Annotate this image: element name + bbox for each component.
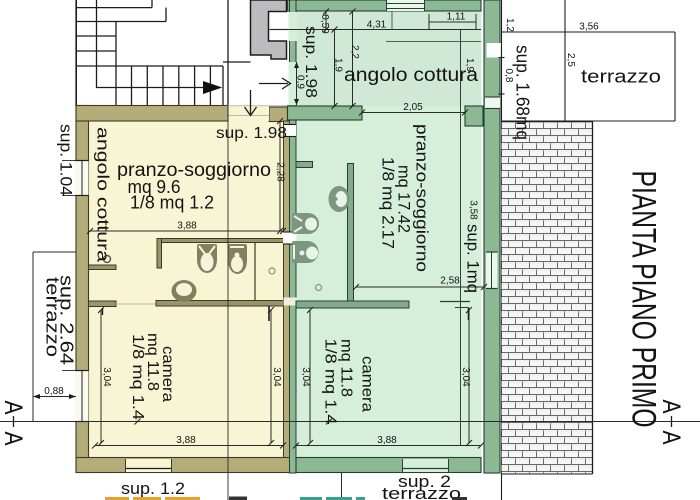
svg-text:A: A bbox=[657, 431, 685, 445]
svg-text:PIANTA PIANO PRIMO: PIANTA PIANO PRIMO bbox=[625, 171, 663, 428]
svg-text:pranzo-soggiorno: pranzo-soggiorno bbox=[413, 124, 431, 272]
svg-text:2,28: 2,28 bbox=[275, 162, 286, 182]
svg-text:angolo cottura: angolo cottura bbox=[344, 65, 478, 86]
svg-text:1/8 mq 1.2: 1/8 mq 1.2 bbox=[130, 193, 214, 213]
svg-text:3,88: 3,88 bbox=[377, 435, 397, 446]
svg-text:terrazzo: terrazzo bbox=[43, 277, 63, 357]
svg-text:A: A bbox=[657, 400, 685, 414]
svg-text:3,04: 3,04 bbox=[300, 367, 311, 387]
svg-text:2,5: 2,5 bbox=[565, 53, 576, 67]
svg-text:0,8: 0,8 bbox=[503, 69, 514, 83]
svg-text:terrazzo: terrazzo bbox=[382, 484, 461, 500]
svg-text:2,58: 2,58 bbox=[440, 276, 460, 287]
svg-text:2,05: 2,05 bbox=[403, 102, 423, 113]
svg-text:angolo cottura: angolo cottura bbox=[94, 127, 113, 263]
svg-text:1/8 mq 2.17: 1/8 mq 2.17 bbox=[379, 157, 397, 249]
svg-text:1,9: 1,9 bbox=[333, 58, 344, 72]
svg-text:3,04: 3,04 bbox=[101, 367, 112, 387]
svg-text:A: A bbox=[0, 432, 27, 446]
svg-text:mq 11.8: mq 11.8 bbox=[338, 339, 355, 397]
svg-text:1/8 mq 1.4: 1/8 mq 1.4 bbox=[322, 339, 339, 425]
svg-text:A: A bbox=[0, 401, 27, 415]
svg-text:3,88: 3,88 bbox=[177, 221, 197, 232]
svg-text:sup. 1.98: sup. 1.98 bbox=[302, 26, 319, 98]
svg-text:1,2: 1,2 bbox=[504, 18, 515, 32]
svg-text:3,88: 3,88 bbox=[176, 435, 196, 446]
svg-text:sup. 1.68mq: sup. 1.68mq bbox=[513, 45, 533, 140]
svg-text:1/8 mq 1.4: 1/8 mq 1.4 bbox=[129, 334, 146, 420]
svg-text:sup. 1.04: sup. 1.04 bbox=[57, 124, 76, 196]
svg-text:3,04: 3,04 bbox=[460, 367, 471, 387]
svg-text:terrazzo: terrazzo bbox=[581, 67, 661, 87]
svg-text:3,56: 3,56 bbox=[579, 22, 599, 33]
svg-text:sup. 1mq: sup. 1mq bbox=[464, 224, 483, 293]
svg-text:3,04: 3,04 bbox=[271, 367, 282, 387]
svg-text:sup. 1.2: sup. 1.2 bbox=[121, 479, 185, 498]
svg-text:sup. 1.98: sup. 1.98 bbox=[216, 125, 287, 142]
svg-text:camera: camera bbox=[359, 356, 376, 412]
svg-text:2,2: 2,2 bbox=[349, 45, 360, 59]
svg-text:1,11: 1,11 bbox=[447, 12, 466, 23]
svg-text:4,31: 4,31 bbox=[367, 20, 387, 31]
svg-text:3,58: 3,58 bbox=[468, 200, 479, 220]
svg-text:0,88: 0,88 bbox=[44, 386, 64, 397]
